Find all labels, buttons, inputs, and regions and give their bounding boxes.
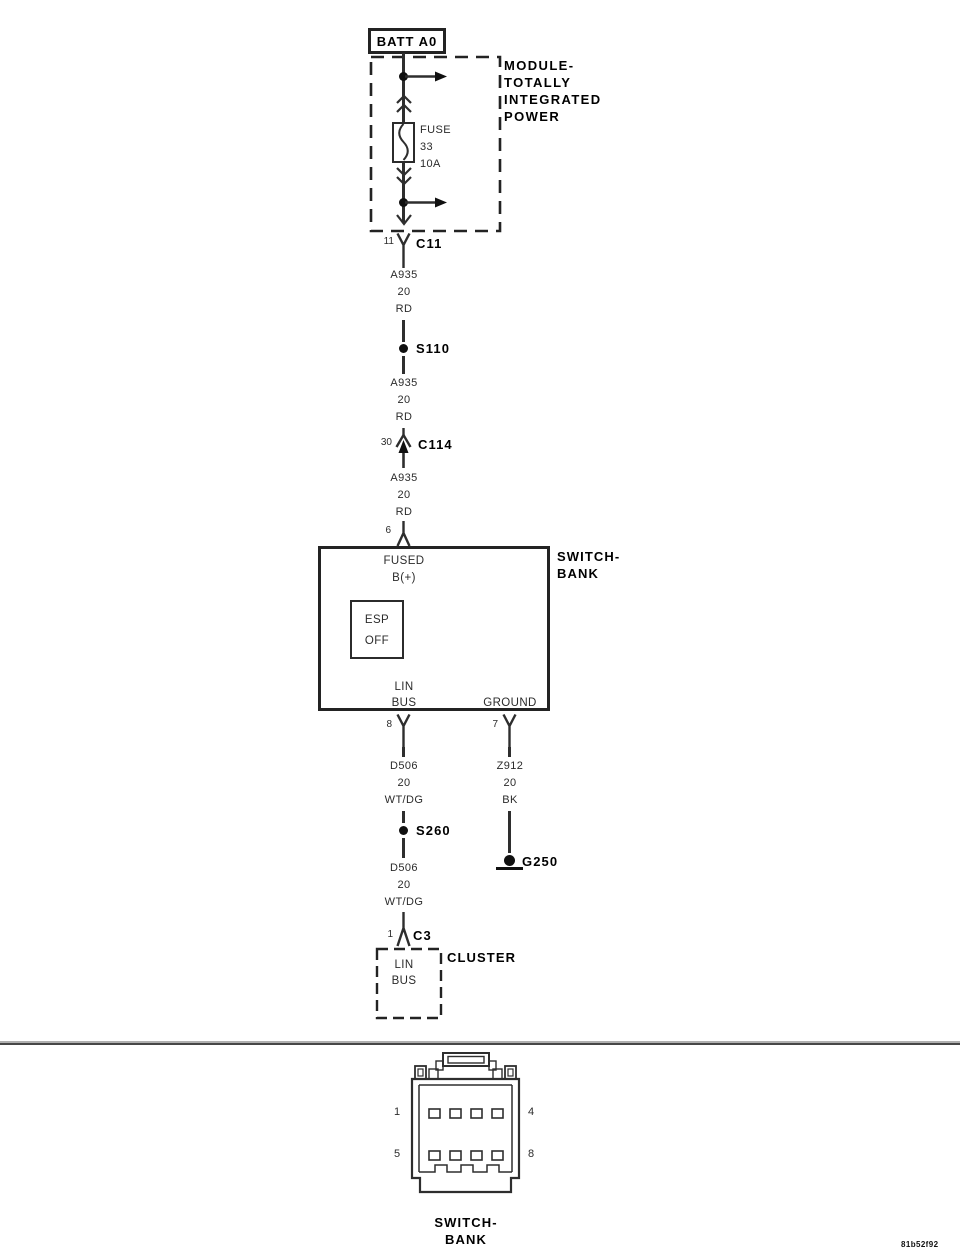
wire-label-z912: Z912 20 BK	[470, 758, 550, 809]
wire-segment	[402, 811, 405, 823]
wire-label-d506-2: D506 20 WT/DG	[364, 860, 444, 911]
switch-bank-pin-ground: 7	[486, 719, 498, 730]
switch-bank-fused-b-label: FUSED B(+)	[374, 553, 434, 587]
splice-s110-dot	[399, 344, 408, 353]
esp-off-label: ESP OFF	[350, 610, 404, 652]
footer-code: 81b52f92	[901, 1240, 938, 1249]
ground-g250-dot	[504, 855, 515, 866]
branch-arrow-right-icon	[405, 70, 447, 83]
battery-feed-box: BATT A0	[368, 28, 446, 54]
splice-s110-label: S110	[416, 341, 450, 356]
switch-bank-pin-lin-bus: 8	[380, 719, 392, 730]
tipm-label: MODULE- TOTALLY INTEGRATED POWER	[504, 57, 602, 125]
connector-c3-symbol-icon	[396, 912, 411, 948]
ground-g250-label: G250	[522, 854, 558, 869]
switch-bank-pin6-symbol-icon	[396, 521, 411, 547]
wire-label-d506-1: D506 20 WT/DG	[364, 758, 444, 809]
connector-c114-symbol-icon	[395, 428, 412, 468]
switch-bank-label: SWITCH- BANK	[557, 548, 620, 582]
wire-segment	[402, 356, 405, 374]
page-divider	[0, 1041, 960, 1045]
connector-view-label: SWITCH- BANK	[413, 1214, 519, 1248]
cluster-label: CLUSTER	[447, 950, 516, 965]
wiring-diagram-page: BATT A0 MODULE- TOTALLY INTEGRATED POWER…	[0, 0, 960, 1257]
wire-exit-arrow-icon	[395, 213, 413, 226]
circuit-continues-down-icon	[395, 166, 413, 186]
connector-c114-label: C114	[418, 437, 453, 452]
switch-bank-connector-drawing	[407, 1052, 523, 1194]
connector-view-pin-5: 5	[390, 1148, 404, 1160]
wire-label-a935-1: A935 20 RD	[369, 267, 439, 318]
wire-segment	[402, 320, 405, 342]
branch-arrow-right-icon	[405, 196, 447, 209]
switch-bank-ground-label: GROUND	[480, 695, 540, 712]
switch-bank-pin8-symbol-icon	[396, 713, 411, 747]
connector-c11-symbol-icon	[396, 232, 411, 268]
battery-feed-label: BATT A0	[371, 34, 443, 49]
splice-s260-dot	[399, 826, 408, 835]
connector-c11-pin: 11	[372, 236, 394, 247]
fuse-symbol	[392, 122, 415, 163]
connector-c3-label: C3	[413, 928, 432, 943]
fuse-label: FUSE 33 10A	[420, 122, 451, 173]
ground-g250-bar	[496, 867, 523, 870]
wire-label-a935-3: A935 20 RD	[369, 470, 439, 521]
splice-s260-label: S260	[416, 823, 451, 838]
wire-segment	[508, 747, 511, 757]
connector-c3-pin: 1	[381, 929, 393, 940]
wire-segment	[402, 838, 405, 858]
cluster-lin-bus-label: LIN BUS	[374, 957, 434, 989]
connector-c114-pin: 30	[370, 437, 392, 448]
connector-c11-label: C11	[416, 236, 442, 251]
wire-label-a935-2: A935 20 RD	[369, 375, 439, 426]
wire-segment	[402, 747, 405, 757]
switch-bank-lin-bus-label: LIN BUS	[374, 679, 434, 711]
circuit-continues-up-icon	[395, 94, 413, 114]
switch-bank-pin7-symbol-icon	[502, 713, 517, 747]
connector-view-pin-1: 1	[390, 1106, 404, 1118]
connector-view-pin-8: 8	[524, 1148, 538, 1160]
switch-bank-pin-in: 6	[379, 525, 391, 536]
connector-view-pin-4: 4	[524, 1106, 538, 1118]
wire-segment	[508, 811, 511, 853]
fuse-element-icon	[394, 124, 413, 161]
